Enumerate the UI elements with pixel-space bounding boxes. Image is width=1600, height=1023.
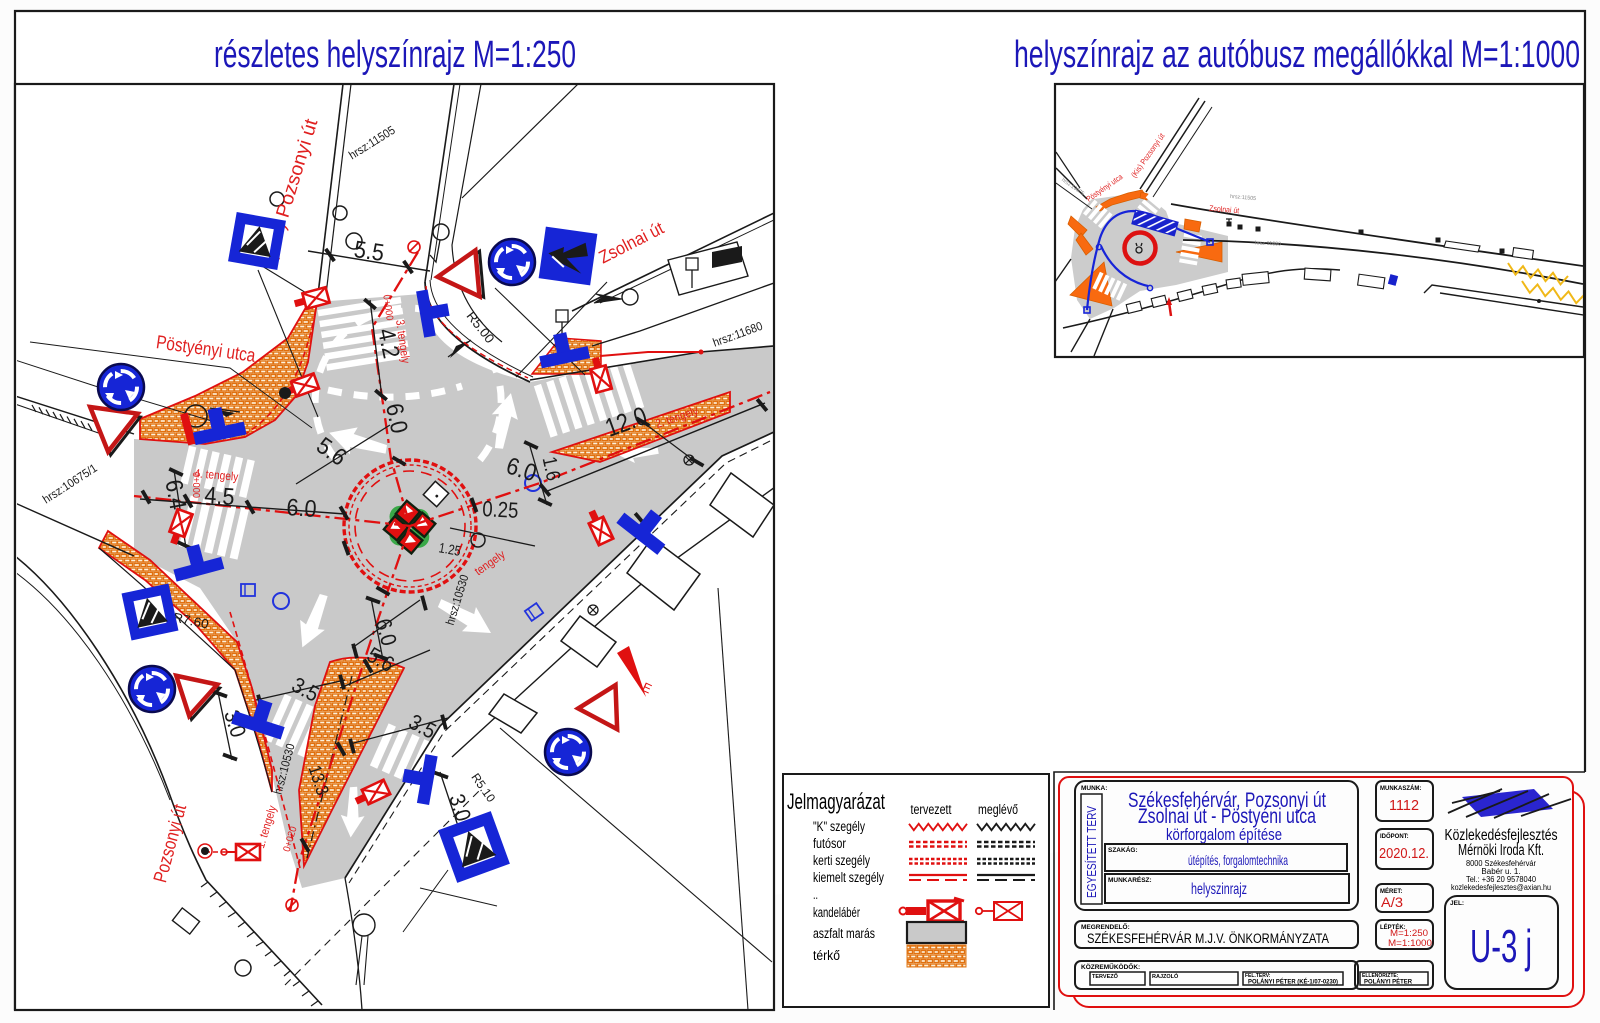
svg-text:térkő: térkő — [813, 948, 840, 963]
svg-text:Mérnöki Iroda Kft.: Mérnöki Iroda Kft. — [1458, 842, 1544, 859]
svg-text:"K" szegély: "K" szegély — [813, 819, 865, 834]
svg-text:tervezett: tervezett — [911, 802, 952, 817]
svg-text:kiemelt szegély: kiemelt szegély — [813, 870, 884, 885]
svg-text:aszfalt marás: aszfalt marás — [813, 926, 875, 941]
svg-text:MUNKASZÁM:: MUNKASZÁM: — [1380, 785, 1421, 792]
svg-text:0.25: 0.25 — [482, 496, 519, 523]
svg-text:M=1:1000: M=1:1000 — [1388, 938, 1432, 949]
svg-text:körforgalom építése: körforgalom építése — [1166, 825, 1282, 844]
svg-text:POLÁNYI PÉTER (KÉ-1/07-0230): POLÁNYI PÉTER (KÉ-1/07-0230) — [1248, 977, 1338, 986]
svg-text:IDŐPONT:: IDŐPONT: — [1380, 833, 1409, 840]
svg-text:Jelmagyarázat: Jelmagyarázat — [787, 789, 885, 814]
svg-text:JEL:: JEL: — [1450, 900, 1464, 907]
svg-text:kandelábér: kandelábér — [813, 905, 860, 920]
svg-text:KÖZREMŰKÖDŐK:: KÖZREMŰKÖDŐK: — [1081, 962, 1140, 971]
svg-text:2020.12.: 2020.12. — [1379, 846, 1429, 862]
svg-text:kerti szegély: kerti szegély — [813, 853, 870, 868]
svg-text:1112: 1112 — [1389, 798, 1419, 814]
svg-text:RAJZOLÓ: RAJZOLÓ — [1152, 972, 1179, 980]
svg-text:6.0: 6.0 — [286, 494, 318, 523]
svg-text:MUNKA:: MUNKA: — [1081, 785, 1107, 792]
svg-text:helyszínrajz az autóbusz megál: helyszínrajz az autóbusz megállókkal M=1… — [1014, 34, 1580, 76]
svg-text:SZAKÁG:: SZAKÁG: — [1108, 845, 1138, 854]
svg-text:MÉRET:: MÉRET: — [1380, 887, 1402, 895]
svg-text:részletes helyszínrajz M=1:250: részletes helyszínrajz M=1:250 — [214, 34, 576, 76]
svg-text:5.5: 5.5 — [352, 236, 385, 267]
svg-text:kozlekedesfejlesztes@axian.hu: kozlekedesfejlesztes@axian.hu — [1451, 883, 1551, 892]
svg-text:útépítés, forgalomtechnika: útépítés, forgalomtechnika — [1188, 852, 1288, 868]
svg-text:U-3 j: U-3 j — [1470, 920, 1532, 972]
svg-text:..: .. — [813, 887, 818, 902]
svg-text:SZÉKESFEHÉRVÁR M.J.V. ÖNKORMÁN: SZÉKESFEHÉRVÁR M.J.V. ÖNKORMÁNYZATA — [1087, 931, 1329, 946]
svg-text:A/3: A/3 — [1381, 895, 1403, 910]
svg-text:0+000: 0+000 — [190, 472, 201, 498]
svg-text:MUNKARÉSZ:: MUNKARÉSZ: — [1108, 875, 1152, 884]
svg-text:futósor: futósor — [813, 836, 846, 851]
svg-text:POLÁNYI PÉTER: POLÁNYI PÉTER — [1364, 977, 1412, 986]
svg-text:MEGRENDELŐ:: MEGRENDELŐ: — [1081, 922, 1130, 931]
svg-text:EGYESÍTETT TERV: EGYESÍTETT TERV — [1084, 805, 1099, 898]
svg-text:meglévő: meglévő — [978, 802, 1018, 817]
svg-text:6.4: 6.4 — [159, 478, 191, 512]
svg-text:4.5: 4.5 — [204, 482, 236, 511]
svg-text:helyszinrajz: helyszinrajz — [1191, 881, 1247, 898]
svg-text:TERVEZŐ: TERVEZŐ — [1092, 973, 1119, 980]
